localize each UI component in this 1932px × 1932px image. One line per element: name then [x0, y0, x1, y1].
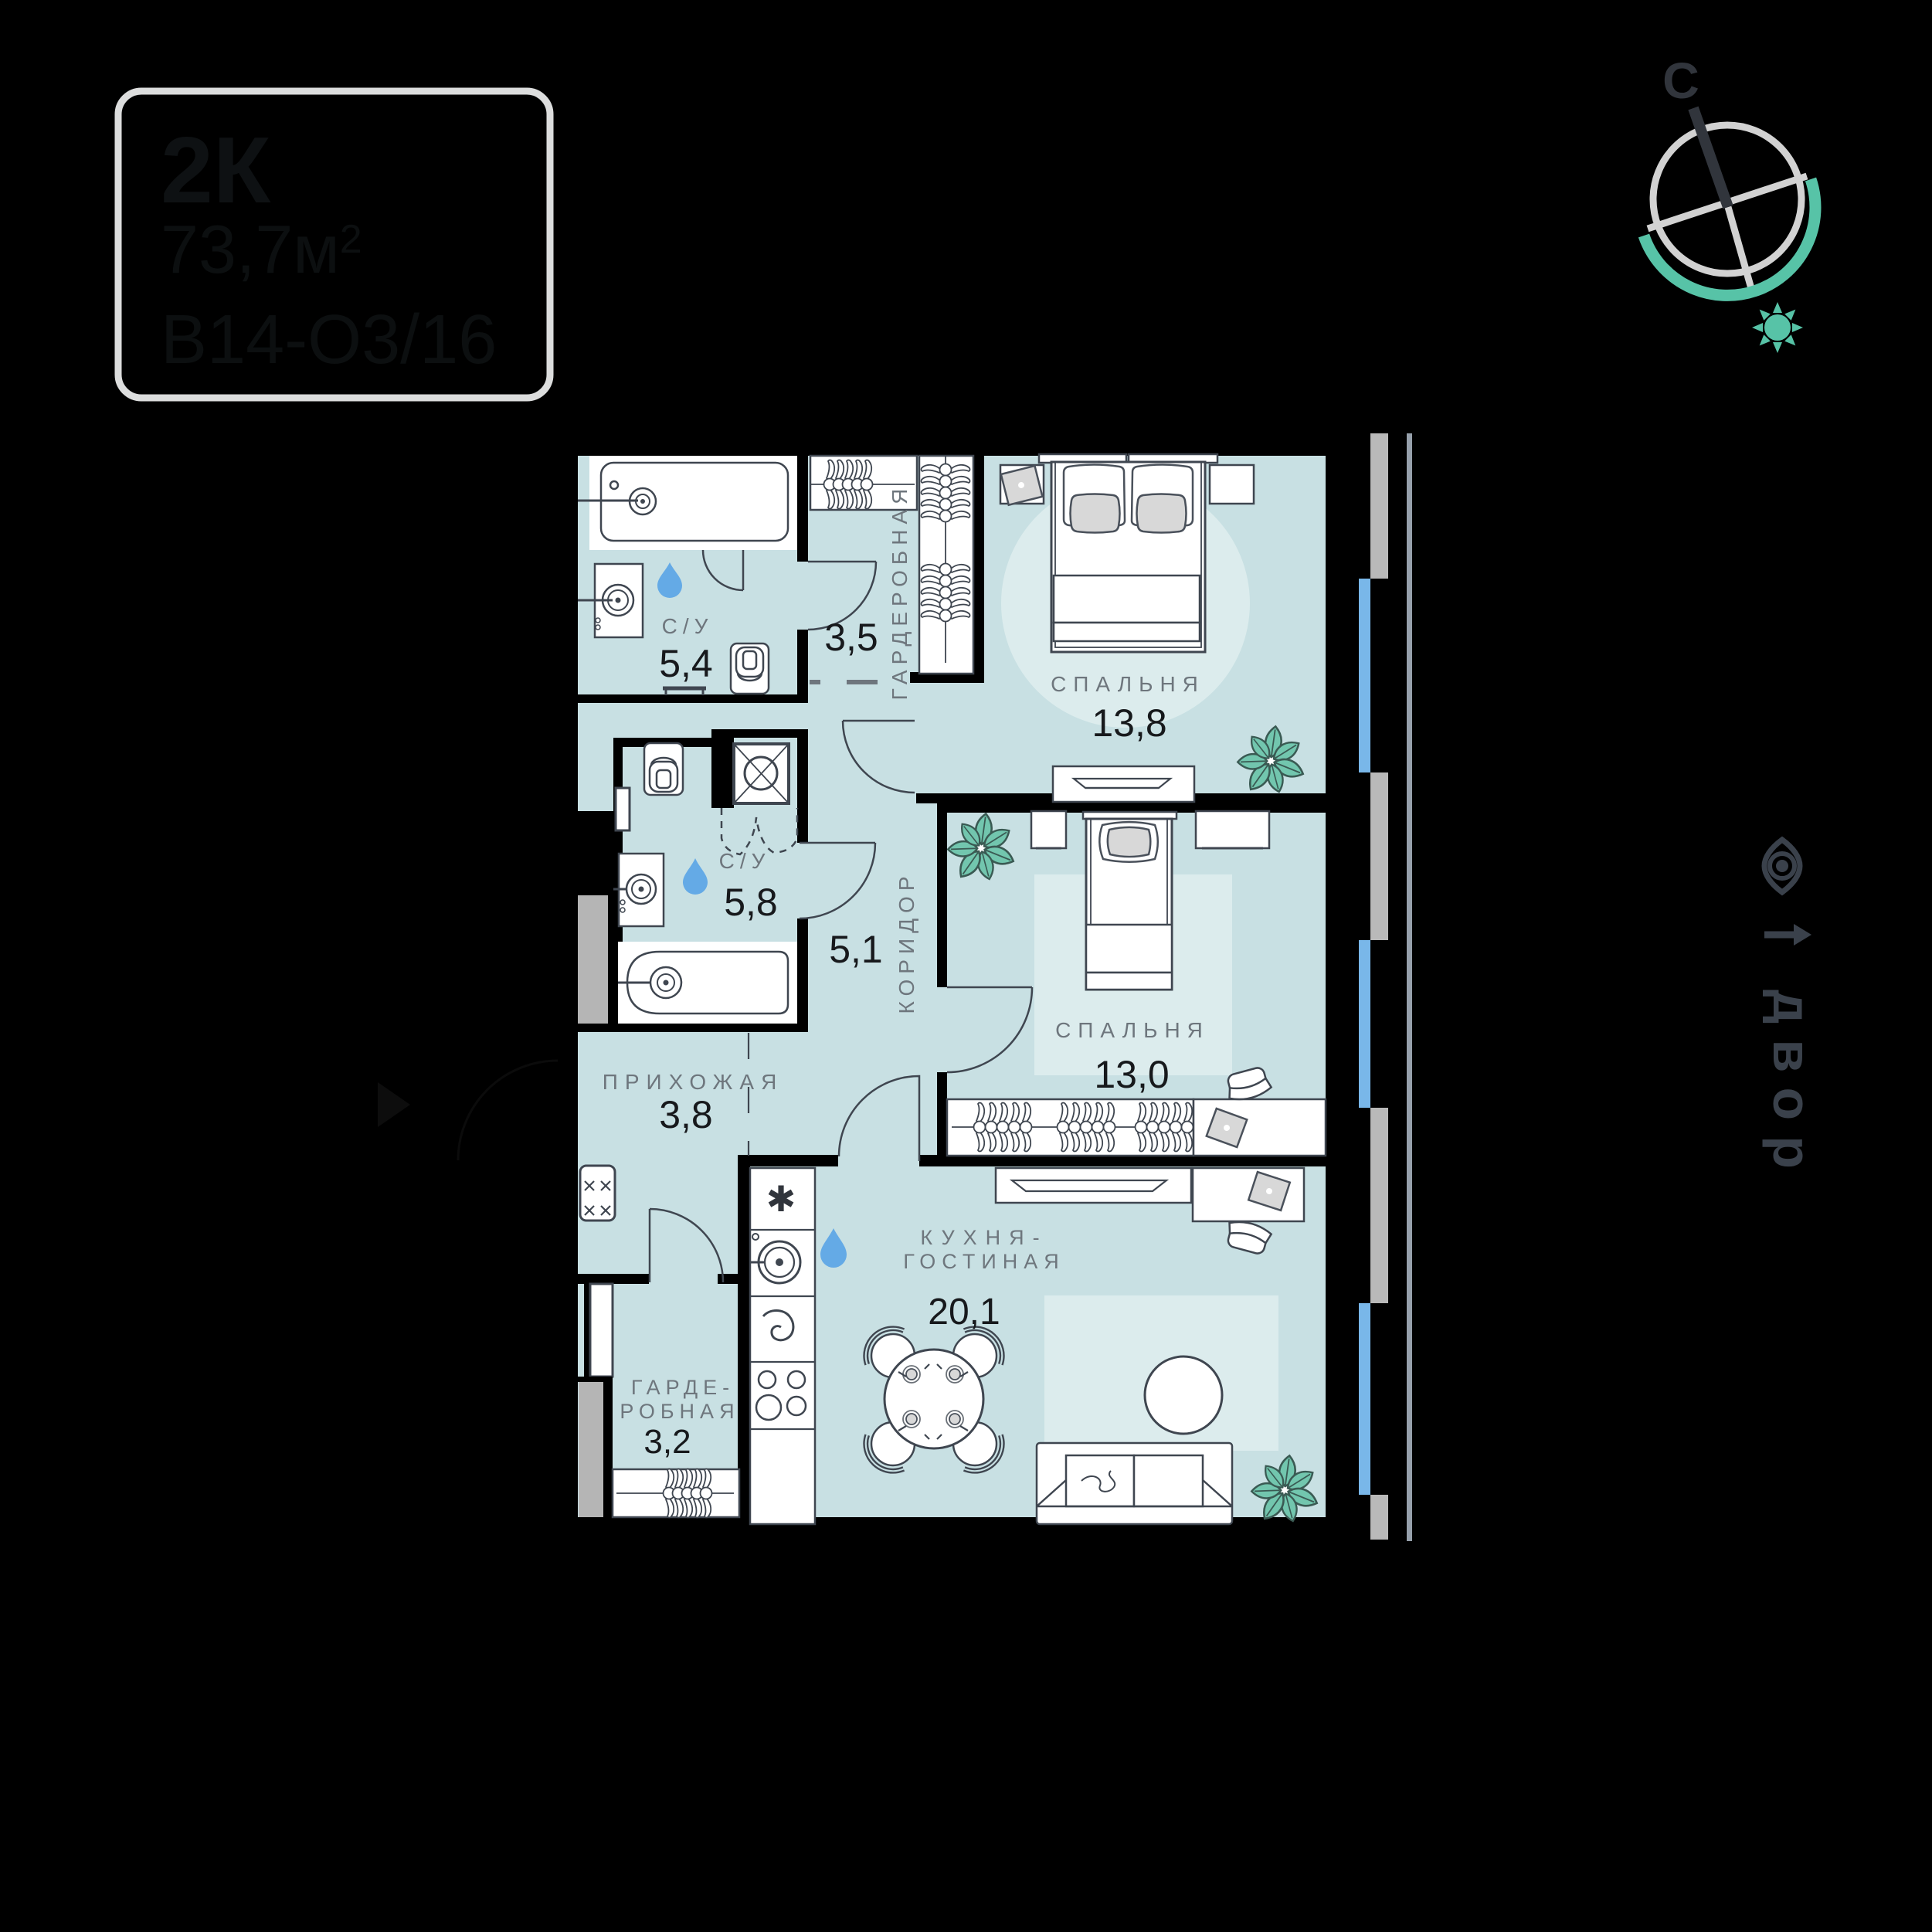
svg-text:3,5: 3,5 [824, 616, 878, 659]
svg-text:С/У: С/У [662, 614, 714, 638]
svg-text:КОРИДОР: КОРИДОР [895, 871, 918, 1014]
svg-text:5,4: 5,4 [659, 642, 713, 685]
svg-text:ГАРДЕРОБНАЯ: ГАРДЕРОБНАЯ [888, 484, 912, 701]
svg-text:5,1: 5,1 [829, 928, 883, 971]
svg-text:В14-О3/16: В14-О3/16 [161, 301, 497, 379]
svg-text:ГАРДЕ-: ГАРДЕ- [631, 1376, 735, 1399]
svg-text:5,8: 5,8 [724, 881, 778, 924]
svg-text:3,2: 3,2 [643, 1423, 691, 1461]
svg-text:13,8: 13,8 [1092, 701, 1166, 745]
svg-text:73,7м2: 73,7м2 [161, 211, 362, 287]
svg-text:СПАЛЬНЯ: СПАЛЬНЯ [1051, 672, 1205, 696]
svg-text:20,1: 20,1 [928, 1292, 1000, 1333]
svg-text:ПРИХОЖАЯ: ПРИХОЖАЯ [603, 1070, 784, 1094]
svg-text:2К: 2К [161, 117, 271, 222]
svg-text:СПАЛЬНЯ: СПАЛЬНЯ [1055, 1018, 1210, 1042]
svg-text:13,0: 13,0 [1094, 1053, 1169, 1096]
svg-text:ГОСТИНАЯ: ГОСТИНАЯ [903, 1250, 1065, 1273]
svg-text:КУХНЯ-: КУХНЯ- [920, 1226, 1047, 1249]
svg-text:двор: двор [1762, 990, 1822, 1184]
svg-text:✱: ✱ [766, 1179, 796, 1219]
svg-text:3,8: 3,8 [659, 1093, 713, 1136]
svg-text:С/У: С/У [719, 849, 771, 873]
svg-text:РОБНАЯ: РОБНАЯ [620, 1400, 739, 1423]
svg-text:С: С [1662, 52, 1699, 109]
